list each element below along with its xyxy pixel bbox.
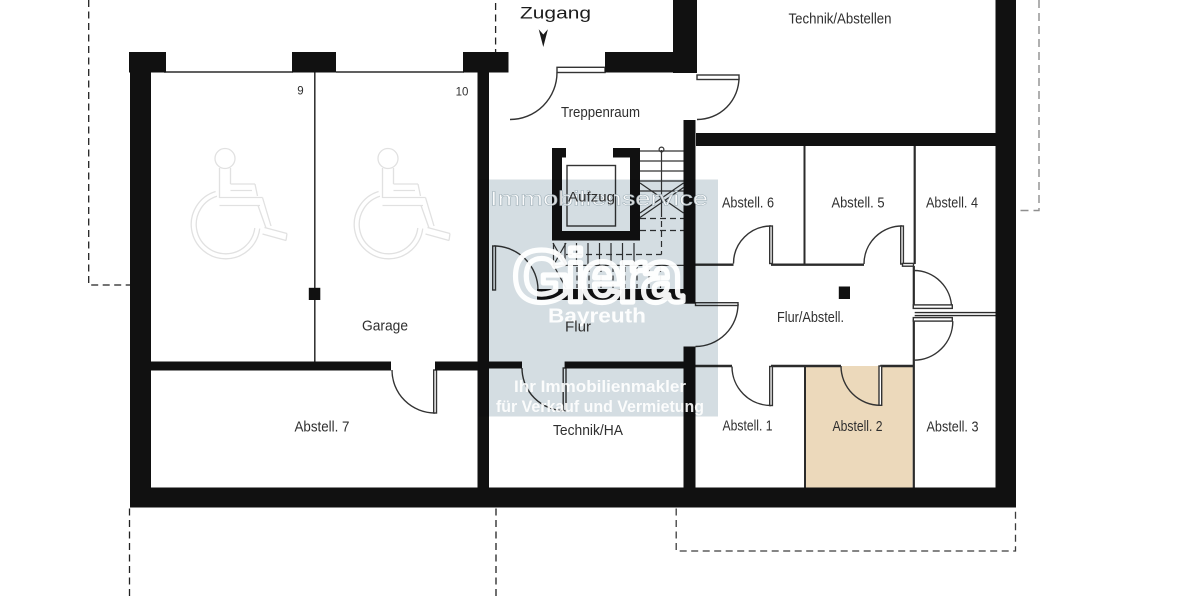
svg-text:10: 10 [456, 87, 469, 99]
svg-text:Zugang: Zugang [520, 5, 591, 23]
svg-text:Abstell. 6: Abstell. 6 [722, 195, 774, 211]
svg-text:Abstell. 4: Abstell. 4 [926, 195, 978, 211]
svg-text:Abstell. 3: Abstell. 3 [927, 419, 979, 435]
svg-text:Abstell. 1: Abstell. 1 [723, 419, 773, 435]
svg-text:Ihr Immobilienmakler: Ihr Immobilienmakler [514, 377, 686, 396]
svg-text:9: 9 [297, 86, 303, 98]
svg-text:Abstell. 5: Abstell. 5 [832, 195, 885, 211]
svg-text:für Verkauf und Vermietung: für Verkauf und Vermietung [496, 397, 704, 416]
svg-text:Abstell. 2: Abstell. 2 [833, 419, 883, 435]
svg-text:Flur/Abstell.: Flur/Abstell. [777, 310, 844, 326]
svg-text:Aufzug: Aufzug [568, 190, 615, 205]
svg-text:Technik/HA: Technik/HA [553, 423, 623, 439]
svg-text:Bayreuth: Bayreuth [548, 306, 646, 328]
svg-text:Flur: Flur [565, 320, 591, 336]
svg-text:Treppenraum: Treppenraum [561, 105, 640, 121]
svg-text:Garage: Garage [362, 319, 408, 335]
svg-text:Technik/Abstellen: Technik/Abstellen [789, 12, 892, 28]
svg-text:Abstell. 7: Abstell. 7 [295, 419, 350, 435]
